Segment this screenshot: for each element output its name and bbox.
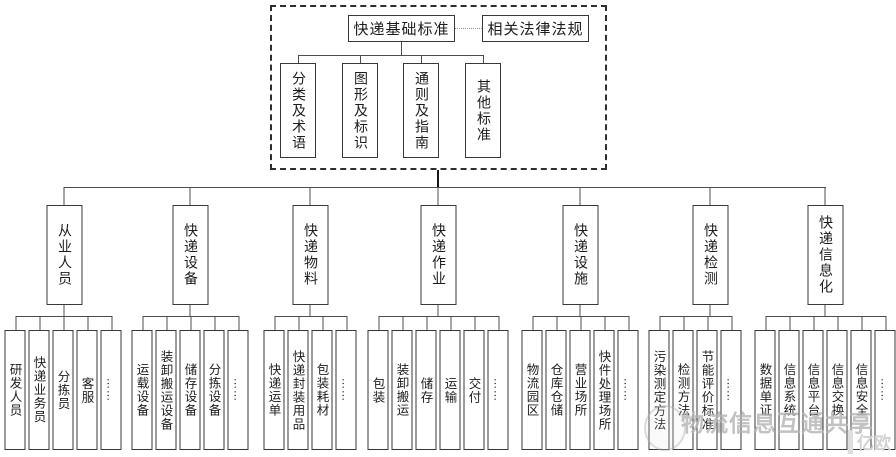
branch-header: 快递检测 — [692, 205, 728, 305]
child-box: 快递封装用品 — [288, 330, 309, 450]
child-cell: 分拣员 — [53, 316, 74, 450]
child-box: 包装耗材 — [312, 330, 333, 450]
child-cell: 储存 — [416, 316, 437, 450]
watermark-seal-icon — [644, 405, 686, 451]
branch-group-1: 快递设备 运载设备 装卸搬运设备 储存设备 分拣设备 …… — [132, 187, 249, 450]
child-cell: …… — [336, 316, 357, 450]
child-box: 交付 — [464, 330, 485, 450]
child-cell: 装卸搬运设备 — [156, 316, 177, 450]
child-box: 研发人员 — [5, 330, 26, 450]
connector-line — [421, 55, 422, 63]
connector-line — [298, 55, 484, 56]
child-cell: 运输 — [440, 316, 461, 450]
child-cell: 仓库仓储 — [546, 316, 567, 450]
watermark-text: 物流信息互通共享 — [681, 404, 873, 438]
child-cell: 分拣设备 — [204, 316, 225, 450]
connector-line — [310, 305, 311, 316]
child-box: 快递业务员 — [29, 330, 50, 450]
branch-group-0: 从业人员 研发人员 快递业务员 分拣员 客服 …… — [6, 187, 123, 450]
connector-line — [401, 42, 402, 55]
branch-header: 快递信息化 — [807, 205, 843, 305]
child-box: 装卸搬运设备 — [156, 330, 177, 450]
child-cell: …… — [228, 316, 249, 450]
child-cell: 研发人员 — [5, 316, 26, 450]
child-cell: 包装耗材 — [312, 316, 333, 450]
connector-line — [710, 305, 711, 316]
child-box: 储存 — [416, 330, 437, 450]
branch-children: 物流园区 仓库仓储 营业场所 快件处理场所 …… — [522, 316, 639, 450]
child-box: 快递运单 — [264, 330, 285, 450]
child-box: 快件处理场所 — [594, 330, 615, 450]
child-cell: 物流园区 — [522, 316, 543, 450]
child-box: 客服 — [77, 330, 98, 450]
connector-line — [438, 305, 439, 316]
ellipsis-box: …… — [336, 330, 357, 450]
branch-group-3: 快递作业 包装 装卸搬运 储存 运输 交付 …… — [368, 187, 509, 450]
branch-group-4: 快递设施 物流园区 仓库仓储 营业场所 快件处理场所 …… — [522, 187, 639, 450]
top-child-box: 图形及标识 — [342, 63, 378, 158]
branch-children: 运载设备 装卸搬运设备 储存设备 分拣设备 …… — [132, 316, 249, 450]
top-child-box: 其他标准 — [465, 63, 501, 158]
connector-line — [483, 55, 484, 63]
related-laws-box: 相关法律法规 — [482, 15, 589, 42]
ellipsis-box: …… — [488, 330, 509, 450]
ellipsis-box: …… — [228, 330, 249, 450]
child-cell: 快递运单 — [264, 316, 285, 450]
child-box: 装卸搬运 — [392, 330, 413, 450]
child-cell: 交付 — [464, 316, 485, 450]
connector-line — [580, 305, 581, 316]
ellipsis-box: …… — [618, 330, 639, 450]
branch-children: 包装 装卸搬运 储存 运输 交付 …… — [368, 316, 509, 450]
child-cell: …… — [488, 316, 509, 450]
child-cell: 快递业务员 — [29, 316, 50, 450]
child-box: 储存设备 — [180, 330, 201, 450]
connector-line — [825, 305, 826, 316]
dotted-connector — [455, 28, 482, 29]
top-child-box: 通则及指南 — [403, 63, 439, 158]
child-cell: 装卸搬运 — [392, 316, 413, 450]
branch-header: 快递作业 — [420, 205, 456, 305]
site-logo: 亿欧 — [848, 429, 891, 454]
child-cell: 客服 — [77, 316, 98, 450]
org-chart-stage: 快递基础标准 相关法律法规 分类及术语 图形及标识 通则及指南 其他标准 从业人… — [0, 0, 896, 457]
branch-children: 研发人员 快递业务员 分拣员 客服 …… — [5, 316, 122, 450]
top-child-box: 分类及术语 — [280, 63, 316, 158]
child-box: 营业场所 — [570, 330, 591, 450]
root-box: 快递基础标准 — [348, 15, 455, 42]
ellipsis-box: …… — [101, 330, 122, 450]
child-cell: 快递封装用品 — [288, 316, 309, 450]
child-box: 包装 — [368, 330, 389, 450]
connector-line — [360, 55, 361, 63]
child-box: 运载设备 — [132, 330, 153, 450]
branch-header: 快递设备 — [172, 205, 208, 305]
logo-bar-icon — [848, 430, 853, 454]
child-cell: 运载设备 — [132, 316, 153, 450]
child-box: 运输 — [440, 330, 461, 450]
branch-children: 快递运单 快递封装用品 包装耗材 …… — [264, 316, 357, 450]
child-cell: …… — [101, 316, 122, 450]
trunk-line — [437, 170, 439, 188]
child-cell: 快件处理场所 — [594, 316, 615, 450]
branch-header: 快递设施 — [562, 205, 598, 305]
child-box: 仓库仓储 — [546, 330, 567, 450]
connector-line — [190, 305, 191, 316]
child-cell: …… — [618, 316, 639, 450]
child-box: 物流园区 — [522, 330, 543, 450]
branch-header: 从业人员 — [46, 205, 82, 305]
child-cell: 包装 — [368, 316, 389, 450]
child-cell: 营业场所 — [570, 316, 591, 450]
child-box: 分拣员 — [53, 330, 74, 450]
logo-text: 亿欧 — [857, 429, 891, 454]
branch-header: 快递物料 — [292, 205, 328, 305]
connector-line — [298, 55, 299, 63]
branch-group-2: 快递物料 快递运单 快递封装用品 包装耗材 …… — [264, 187, 357, 450]
child-cell: 储存设备 — [180, 316, 201, 450]
child-box: 分拣设备 — [204, 330, 225, 450]
connector-line — [64, 305, 65, 316]
